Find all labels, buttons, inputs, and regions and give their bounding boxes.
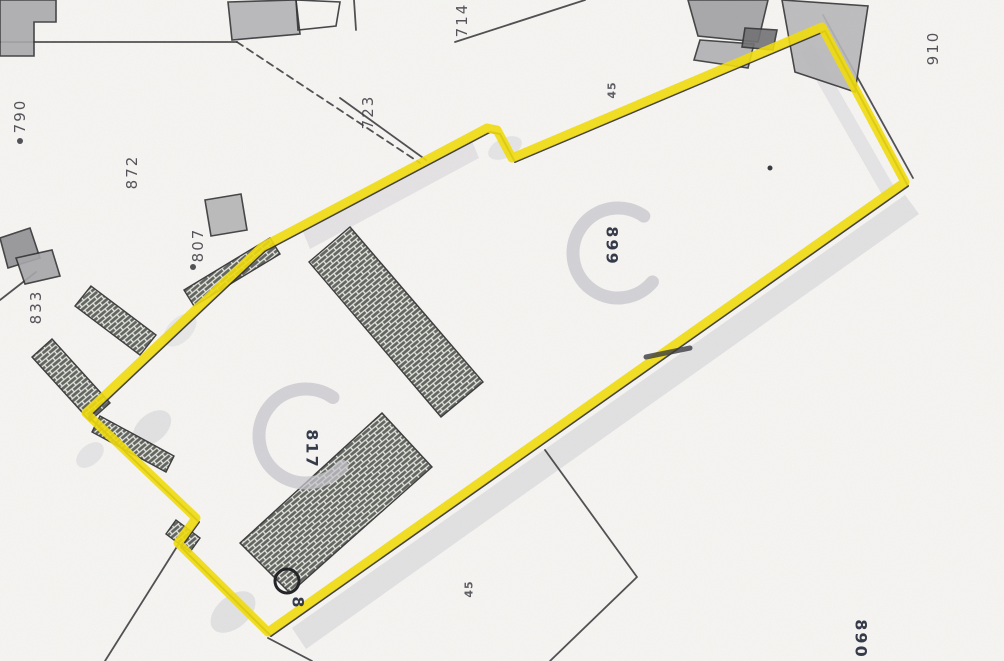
paper-grain-overlay	[0, 0, 1004, 661]
map-canvas	[0, 0, 1004, 661]
cadastral-map-scan: 71472379087280783391045458998178908	[0, 0, 1004, 661]
